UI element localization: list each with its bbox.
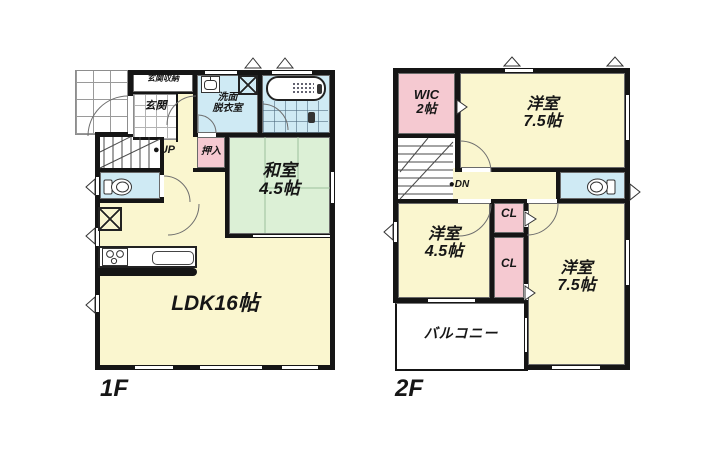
wall <box>95 199 164 203</box>
bedroom-left-label-line1: 洋室 <box>398 226 490 243</box>
bedroom-left-label-line2: 4.5帖 <box>398 243 490 260</box>
wall <box>455 138 460 172</box>
bath-tile-floor <box>263 101 328 133</box>
wall <box>193 168 229 172</box>
wall <box>490 233 528 237</box>
window <box>625 240 630 285</box>
wall <box>398 199 625 203</box>
window <box>625 95 630 140</box>
washitsu-label-line2: 4.5帖 <box>229 180 330 198</box>
wall-thin <box>133 137 163 140</box>
closet-bottom-label: CL <box>494 257 524 270</box>
kitchen-counter-base <box>95 268 197 276</box>
window <box>200 365 262 370</box>
window <box>524 318 528 352</box>
entrance-porch <box>75 70 128 135</box>
door-opening <box>198 133 216 137</box>
bedroom-top-label: 洋室 7.5帖 <box>460 96 625 131</box>
washer-pan-icon <box>238 75 258 95</box>
fridge-space-icon <box>98 207 122 231</box>
bedroom-right-label-line1: 洋室 <box>528 260 625 277</box>
wall <box>330 70 335 370</box>
ldk-label: LDK16帖 <box>100 293 330 316</box>
genkan-label: 玄関 <box>133 101 178 113</box>
door-opening <box>462 168 491 172</box>
wall <box>95 168 164 172</box>
toilet-icon-2f <box>586 176 616 198</box>
window <box>205 70 237 75</box>
window <box>552 365 600 370</box>
window <box>330 172 335 203</box>
closet-top-label: CL <box>494 207 524 220</box>
window <box>428 298 475 303</box>
door-opening <box>527 199 557 203</box>
toilet-icon-1f <box>103 176 133 198</box>
wall <box>393 134 455 138</box>
balcony-label: バルコニー <box>398 326 524 341</box>
bathtub-jet-dots <box>292 82 314 95</box>
dn-text: DN <box>455 179 469 190</box>
shower-fixture-icon <box>308 112 315 123</box>
washitsu-label-line1: 和室 <box>229 162 330 180</box>
bedroom-top-label-line1: 洋室 <box>460 96 625 113</box>
door-opening <box>524 211 528 227</box>
door-opening <box>458 199 491 203</box>
wall <box>258 70 262 137</box>
vanity-sink-icon <box>201 76 220 93</box>
wic-label: WIC 2帖 <box>398 88 455 116</box>
kitchen-sink-icon <box>152 251 194 265</box>
bedroom-right-label-line2: 7.5帖 <box>528 277 625 294</box>
stairs-up-label: ●UP <box>141 145 187 157</box>
bedroom-top-label-line2: 7.5帖 <box>460 113 625 130</box>
window <box>272 70 312 75</box>
stove-icon <box>102 248 128 266</box>
kitchen-counter <box>98 246 197 268</box>
bath-faucet-icon <box>317 84 322 94</box>
floor1-label: 1F <box>100 376 170 402</box>
washitsu-label: 和室 4.5帖 <box>229 162 330 199</box>
floor-plan: 玄関収納 玄関 洗面 脱衣室 ●UP 押入 和室 4.5帖 LDK16帖 1F … <box>0 0 720 457</box>
window <box>505 68 533 73</box>
window <box>282 365 318 370</box>
bedroom-right-label: 洋室 7.5帖 <box>528 260 625 295</box>
wall-thin <box>133 92 193 94</box>
up-dot: ● <box>153 144 160 156</box>
window <box>95 177 100 195</box>
wic-label-line1: WIC <box>398 88 455 102</box>
window <box>135 365 173 370</box>
bedroom-left-label: 洋室 4.5帖 <box>398 226 490 261</box>
up-text: UP <box>160 144 175 156</box>
genkan-storage-label: 玄関収納 <box>133 75 193 84</box>
floor2-label: 2F <box>395 376 465 402</box>
oshiire-label: 押入 <box>197 147 225 158</box>
stairs-down-label: ●DN <box>436 180 482 191</box>
wic-label-line2: 2帖 <box>398 102 455 116</box>
door-opening <box>160 175 164 197</box>
washroom-label-line2: 脱衣室 <box>197 104 258 115</box>
washroom-label: 洗面 脱衣室 <box>197 93 258 115</box>
wall <box>229 234 253 238</box>
sliding-door <box>253 234 330 238</box>
